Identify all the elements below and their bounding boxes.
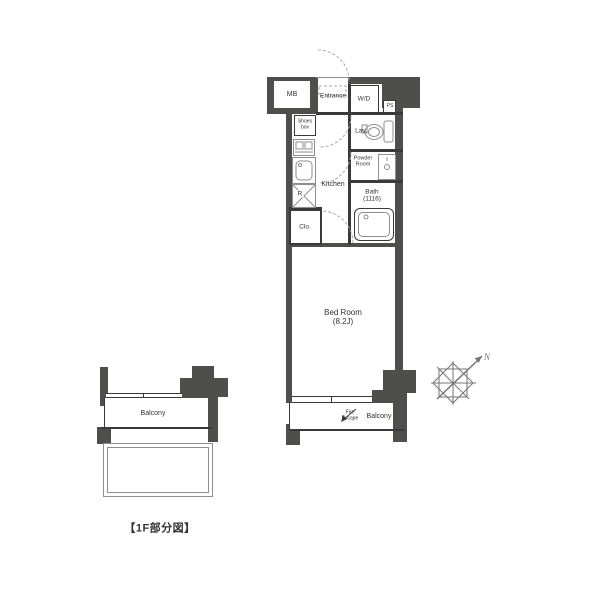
closet-label: Clo.: [299, 223, 311, 230]
partial-plan-caption: 【1F部分図】: [124, 523, 195, 536]
bedroom-size-label: (8.2J): [324, 317, 362, 326]
bath-size-label: (1116): [363, 196, 381, 203]
bedroom-door-arc-icon: [321, 211, 353, 243]
lav-label: Lav.: [355, 127, 367, 134]
bathtub-faucet-icon: [364, 215, 368, 219]
bedroom-label: Bed Room (8.2J): [324, 308, 362, 326]
hallway-door-arc-icon: [320, 116, 351, 147]
washbasin-icon: [385, 157, 390, 170]
bath-label-line1: Bath: [363, 189, 381, 196]
mb-label: MB: [287, 91, 298, 99]
floorplan-canvas: N MB Entrance W/D PS Shoes box Lav. Powd…: [0, 0, 604, 602]
kitchen-label: Kitchen: [321, 181, 344, 189]
compass-rose: N: [431, 352, 491, 405]
p-balcony-label: Balcony: [141, 410, 166, 418]
kitchen-door-arc-icon: [320, 152, 351, 183]
wd-label: W/D: [358, 95, 371, 102]
entrance-door-arc-icon: [318, 50, 349, 96]
fire-escape-label: Fire Escape: [342, 410, 359, 422]
sink-icon: [296, 161, 312, 180]
powder-room-label-line2: Room: [354, 162, 373, 168]
bath-label: Bath (1116): [363, 189, 381, 204]
balcony-label: Balcony: [367, 413, 392, 421]
ps-label: PS: [387, 104, 394, 110]
fixture-overlay: N: [0, 0, 604, 602]
bedroom-label-line1: Bed Room: [324, 308, 362, 317]
fire-escape-label-line2: Escape: [342, 416, 359, 422]
entrance-label: Entrance: [320, 92, 346, 99]
compass-north-label: N: [483, 352, 491, 362]
powder-room-label: Powder Room: [354, 156, 373, 169]
refrigerator-label: R: [297, 190, 304, 197]
shoes-box-label: Shoes box: [298, 119, 312, 131]
shoes-box-label-line2: box: [298, 125, 312, 131]
stove-icon: [295, 142, 313, 152]
